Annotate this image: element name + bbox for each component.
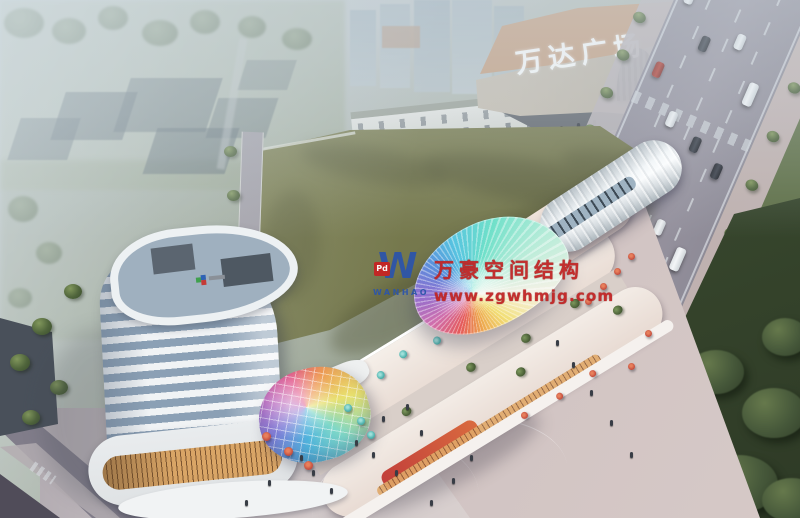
hazy-tree <box>238 16 266 38</box>
street-tree <box>786 80 800 95</box>
umbrella-orange <box>628 253 635 260</box>
pedestrian <box>312 470 315 476</box>
hazy-tree <box>142 20 178 46</box>
hazy-tree <box>8 196 38 222</box>
umbrella-teal <box>367 431 375 439</box>
umbrella-red <box>284 447 293 456</box>
pedestrian <box>330 488 333 494</box>
tower-roof-box <box>151 244 196 275</box>
park-tree <box>742 388 800 438</box>
distant-block <box>382 26 420 48</box>
warehouse-building <box>113 78 223 132</box>
aerial-rendering-scene: 万达广场 <box>0 0 800 518</box>
street-tree <box>224 146 237 157</box>
street-tree <box>631 10 647 25</box>
pedestrian <box>590 390 593 396</box>
street-tree <box>614 47 630 62</box>
umbrella-teal <box>344 404 352 412</box>
plaza-tree <box>10 354 30 371</box>
pedestrian <box>610 420 613 426</box>
tower-logo-red <box>201 280 206 285</box>
umbrella-red <box>304 461 313 470</box>
pedestrian <box>572 362 575 368</box>
pedestrian <box>452 478 455 484</box>
park-tree <box>762 318 800 356</box>
umbrella-red <box>262 432 271 441</box>
street-tree <box>227 190 240 201</box>
pedestrian <box>268 480 271 486</box>
watermark: W Pd WANHAO 万豪空间结构 www.zgwhmjg.com <box>368 250 608 312</box>
pedestrian <box>382 416 385 422</box>
hazy-tree <box>52 18 86 44</box>
watermark-brand: WANHAO <box>368 288 434 297</box>
street-tree <box>598 85 614 100</box>
residential-tower <box>350 10 376 86</box>
hazy-tree <box>8 288 32 308</box>
plaza-tree <box>22 410 40 425</box>
pedestrian <box>430 500 433 506</box>
watermark-logo: W Pd WANHAO <box>368 252 434 308</box>
hazy-tree <box>4 8 44 38</box>
pedestrian <box>395 470 398 476</box>
umbrella-teal <box>357 417 365 425</box>
pedestrian <box>556 340 559 346</box>
warehouse-building <box>237 60 297 90</box>
umbrella-orange <box>645 330 652 337</box>
pedestrian <box>300 455 303 461</box>
hazy-tree <box>36 242 62 264</box>
tower-logo-text <box>209 275 225 281</box>
pedestrian <box>420 430 423 436</box>
pedestrian <box>630 452 633 458</box>
hazy-tree <box>190 10 220 34</box>
pedestrian <box>406 404 409 410</box>
plaza-tree <box>64 284 82 299</box>
watermark-text: 万豪空间结构 www.zgwhmjg.com <box>434 254 608 305</box>
street-tree <box>743 177 759 192</box>
pedestrian <box>245 500 248 506</box>
hazy-tree <box>98 6 128 30</box>
watermark-url: www.zgwhmjg.com <box>434 287 608 305</box>
pedestrian <box>372 452 375 458</box>
umbrella-orange <box>614 268 621 275</box>
pedestrian <box>355 440 358 446</box>
umbrella-orange <box>628 363 635 370</box>
plaza-tree <box>32 318 52 335</box>
hazy-tree <box>282 28 312 50</box>
pedestrian <box>470 455 473 461</box>
watermark-company: 万豪空间结构 <box>434 254 608 283</box>
watermark-badge: Pd <box>374 262 390 276</box>
street-tree <box>764 129 780 144</box>
